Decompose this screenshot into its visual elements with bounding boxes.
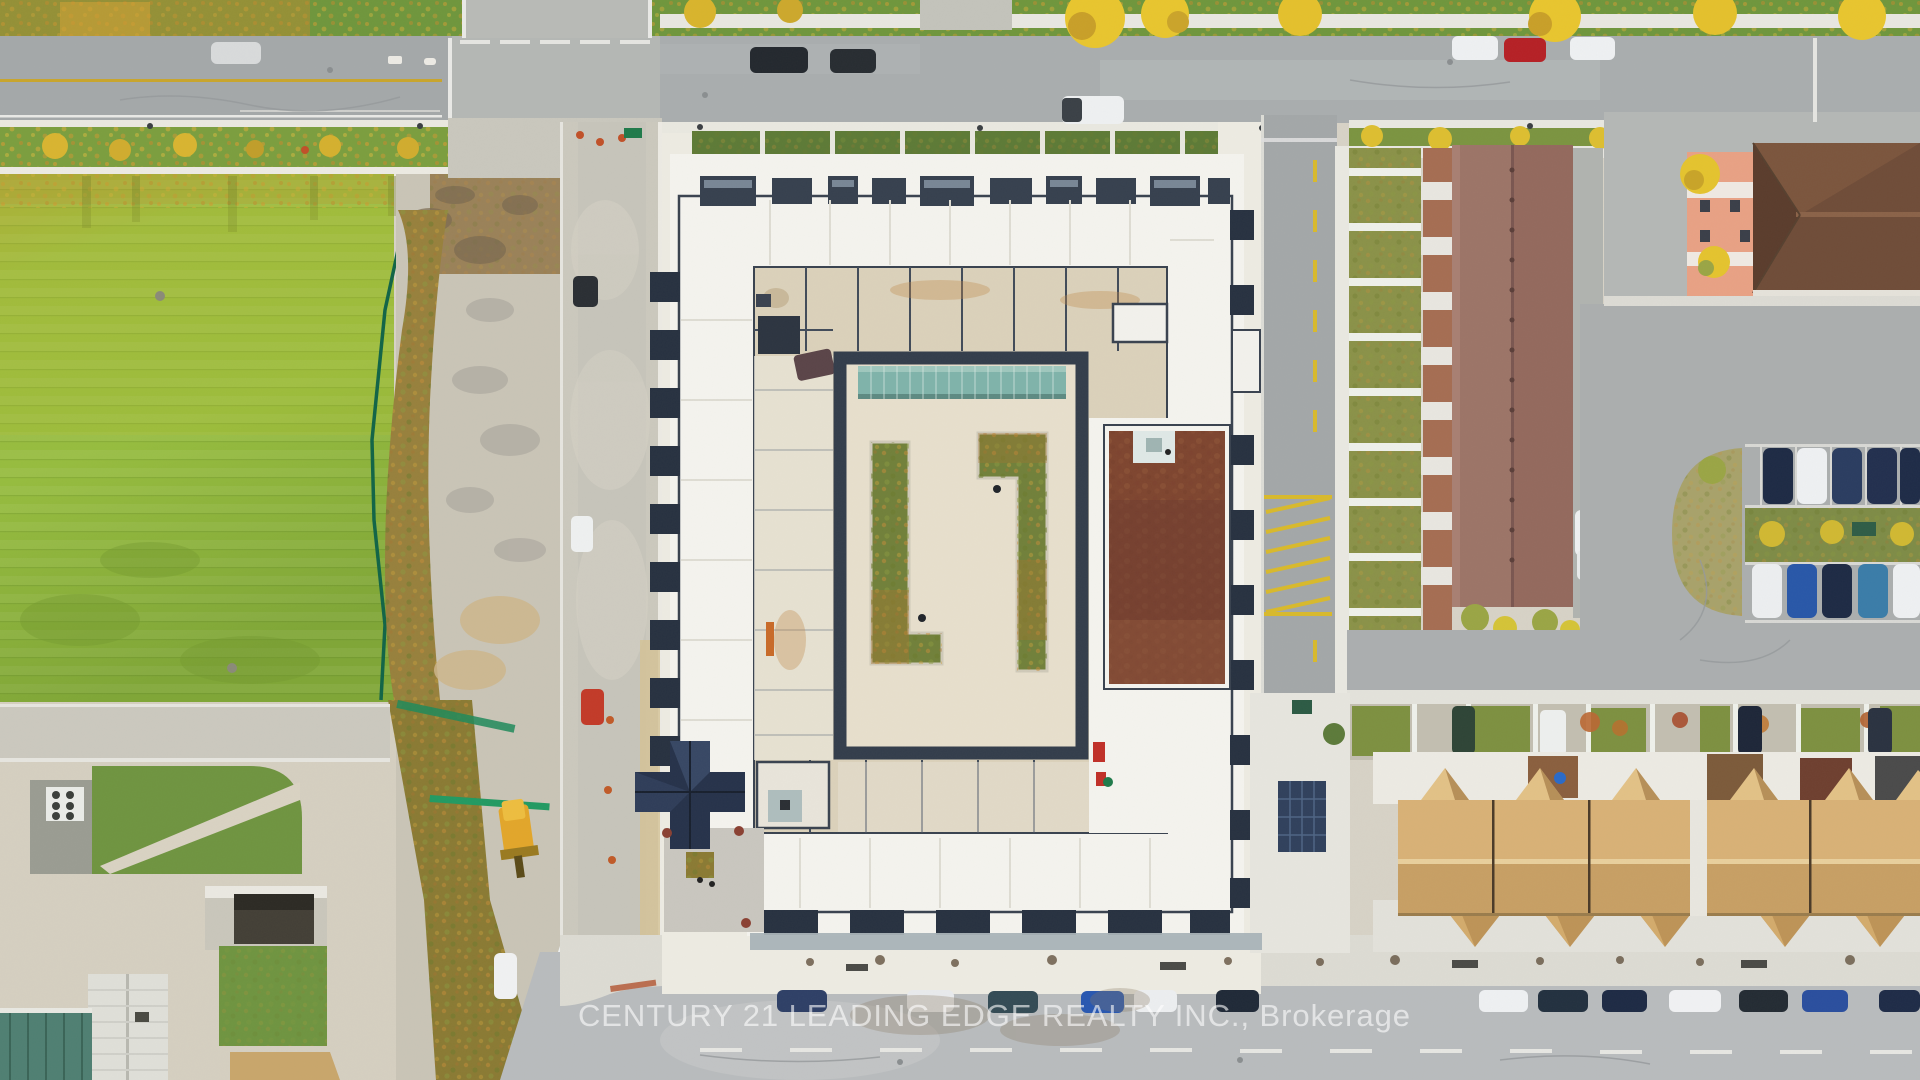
svg-text:CENTURY 21 LEADING EDGE REALTY: CENTURY 21 LEADING EDGE REALTY INC., Bro… [578, 998, 1410, 1033]
